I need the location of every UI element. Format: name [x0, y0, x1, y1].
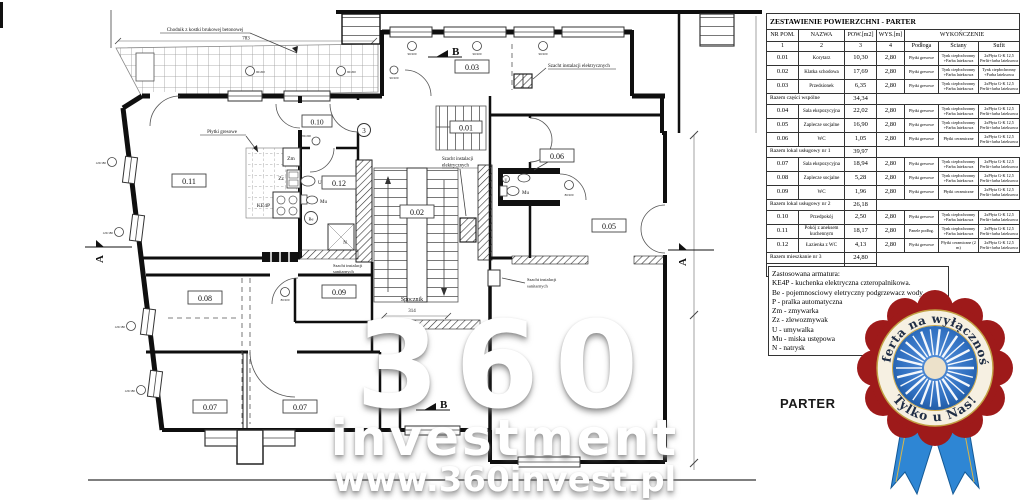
col-num-2: 2 — [799, 42, 845, 52]
table-cell: Płytki gresowe — [905, 239, 939, 253]
table-cell: Tynk ciepłochronny +Farba lateksowa — [939, 105, 979, 119]
table-cell: Przedsionek — [799, 80, 845, 94]
window-tag: 120/180 — [96, 161, 107, 165]
table-cell: 2xPłyta G-K 12,5 Perlit+farba lateksowa — [979, 239, 1020, 253]
table-title: ZESTAWIENIE POWIERZCHNI - PARTER — [767, 14, 1020, 30]
table-cell: Klatka schodowa — [799, 66, 845, 80]
table-cell: 2,80 — [877, 52, 905, 66]
table-cell: 0.12 — [767, 239, 799, 253]
room-label-0-12: 0.12 — [332, 179, 346, 188]
table-title-row: ZESTAWIENIE POWIERZCHNI - PARTER — [767, 14, 1020, 30]
table-cell: Płytki gresowe — [905, 211, 939, 225]
door-tag: 80/200 — [302, 134, 311, 138]
legend-line: Zastosowana armatura: — [772, 269, 948, 278]
shaft-label: Szacht instalacji — [527, 277, 557, 282]
sidewalk-dim: 783 — [242, 37, 250, 42]
table-cell: 0.04 — [767, 105, 799, 119]
shaft-label: Szacht instalacji — [333, 263, 363, 268]
table-cell: 2,50 — [845, 211, 877, 225]
table-cell: Przedpokój — [799, 211, 845, 225]
windows-south — [205, 426, 580, 467]
table-cell: 2,80 — [877, 225, 905, 239]
table-cell — [877, 253, 1020, 264]
window-tag: 120/180 — [125, 389, 136, 393]
table-cell: Sala ekspozycyjna — [799, 105, 845, 119]
table-cell: 2,80 — [877, 66, 905, 80]
fixture-label-zz: Zz — [278, 176, 284, 182]
table-row: 0.09WC1,962,80Płytki gresowePłytki ceram… — [767, 186, 1020, 200]
floor-finish-label: Płytki gresowe — [207, 130, 238, 135]
window-tag: 90/200 — [408, 52, 417, 56]
table-cell: 0.09 — [767, 186, 799, 200]
table-cell: 2xPłyta G-K 12,5 Perlit+farba lateksowa — [979, 158, 1020, 172]
table-cell: Płytki gresowe — [905, 105, 939, 119]
table-cell: 0.10 — [767, 211, 799, 225]
table-cell: Sala ekspozycyjna — [799, 158, 845, 172]
table-cell: 18,94 — [845, 158, 877, 172]
screenshot-stage: Chodnik z kostki brukowej betonowej 783 — [0, 0, 1024, 500]
table-cell: Tynk ciepłochronny +Farba lateksowa — [939, 211, 979, 225]
table-cell: Płytki gresowe — [905, 186, 939, 200]
fixture-label-mu: Mu — [320, 200, 327, 205]
table-cell: 4,13 — [845, 239, 877, 253]
table-header-row: NR POM. NAZWA POW.[m2] WYS.[m] WYKOŃCZEN… — [767, 30, 1020, 42]
table-cell: 2xPłyta G-K 12,5 Perlit+farba lateksowa — [979, 225, 1020, 239]
area-table: ZESTAWIENIE POWIERZCHNI - PARTER NR POM.… — [766, 13, 1020, 277]
spocznik-dim: 314 — [408, 309, 416, 314]
table-cell: Płytki gresowe — [905, 172, 939, 186]
table-cell: 2,80 — [877, 105, 905, 119]
fixture-label-u: U — [318, 181, 322, 186]
table-cell: WC — [799, 186, 845, 200]
table-cell: 2xPłyta G-K 12,5 Perlit+farba lateksowa — [979, 172, 1020, 186]
table-cell: 22,02 — [845, 105, 877, 119]
table-cell: 0.05 — [767, 119, 799, 133]
room-label-0-01: 0.01 — [459, 124, 473, 133]
door-tag: 90/200 — [390, 76, 399, 80]
room-label-0-07a: 0.07 — [203, 403, 217, 412]
room-label-0-11: 0.11 — [182, 177, 196, 186]
table-cell: 24,80 — [845, 253, 877, 264]
shaft-label: Szacht instalacji elektrycznych — [548, 64, 610, 69]
col-header-nazwa: NAZWA — [799, 30, 845, 42]
window-tag: 90/200 — [539, 52, 548, 56]
table-cell: Płytki ceramiczne — [939, 186, 979, 200]
col-num-3: 3 — [845, 42, 877, 52]
table-cell: 2,80 — [877, 158, 905, 172]
table-cell: Razem lokal usługowy nr 1 — [767, 147, 845, 158]
table-summary-row: Razem części wspólne34,34 — [767, 94, 1020, 105]
room-label-0-09: 0.09 — [332, 288, 346, 297]
table-cell: Płytki gresowe — [905, 80, 939, 94]
table-summary-row: Razem mieszkanie nr 324,80 — [767, 253, 1020, 264]
table-cell: 18,17 — [845, 225, 877, 239]
table-cell: Płytki gresowe — [905, 66, 939, 80]
table-cell: 2xPłyta G-K 12,5 Perlit+farba lateksowa — [979, 119, 1020, 133]
col-header-wys: WYS.[m] — [877, 30, 905, 42]
table-cell: Tynk ciepłochronny +Farba lateksowa — [939, 66, 979, 80]
window-tag: 120/180 — [115, 325, 126, 329]
badge-rosette: Oferta na wyłączność Tylko u Nas! — [853, 286, 1013, 446]
table-cell: Razem mieszkanie nr 3 — [767, 253, 845, 264]
table-cell: Tynk ciepłochronny +Farba lateksowa — [939, 158, 979, 172]
table-cell: 34,34 — [845, 94, 877, 105]
table-cell: Razem części wspólne — [767, 94, 845, 105]
door-tag: 80/200 — [565, 193, 574, 197]
table-cell: Tynk ciepłochronny +Farba lateksowa — [979, 66, 1020, 80]
table-cell: 39,97 — [845, 147, 877, 158]
table-cell: Płytki gresowe — [905, 158, 939, 172]
table-cell: 2xPłyta G-K 12,5 Perlit+farba lateksowa — [979, 105, 1020, 119]
col-header-nr: NR POM. — [767, 30, 799, 42]
table-cell: 1,96 — [845, 186, 877, 200]
col-num-4: 4 — [877, 42, 905, 52]
room-label-0-02: 0.02 — [410, 208, 424, 217]
fixture-label-ke4p: KE4P — [257, 203, 270, 209]
table-cell: 2xPłyta G-K 12,5 Perlit+farba lateksowa — [979, 133, 1020, 147]
table-cell: 17,69 — [845, 66, 877, 80]
table-row: 0.03Przedsionek6,352,80Płytki gresoweTyn… — [767, 80, 1020, 94]
table-cell: 16,90 — [845, 119, 877, 133]
table-cell: Tynk ciepłochronny +Farba lateksowa — [939, 52, 979, 66]
table-cell: 2,80 — [877, 211, 905, 225]
table-row: 0.04Sala ekspozycyjna22,022,80Płytki gre… — [767, 105, 1020, 119]
table-cell: Płytki gresowe — [905, 133, 939, 147]
table-cell: 2,80 — [877, 133, 905, 147]
fixture-label-zm: Zm — [287, 156, 295, 162]
table-cell: Płytki ceramiczne — [939, 133, 979, 147]
table-cell: Pokój z aneksem kuchennym — [799, 225, 845, 239]
staircase — [374, 106, 486, 302]
table-cell: Panele podłog. — [905, 225, 939, 239]
table-cell: Tynk ciepłochronny +Farba lateksowa — [939, 80, 979, 94]
col-header-pow: POW.[m2] — [845, 30, 877, 42]
shaft-label: Szacht instalacji — [442, 157, 474, 162]
shaft-label: sanitarnych — [527, 284, 548, 289]
table-cell: Zaplecze socjalne — [799, 119, 845, 133]
shaft-label: elektrycznych — [442, 164, 470, 169]
table-cell: Zaplecze socjalne — [799, 172, 845, 186]
fixture-label-be: Be — [309, 217, 314, 222]
section-label-b: B — [452, 46, 460, 58]
table-cell: Razem lokal usługowy nr 2 — [767, 200, 845, 211]
table-cell: Płytki gresowe — [905, 52, 939, 66]
axis-marker-3: 3 — [362, 127, 366, 135]
table-row: 0.11Pokój z aneksem kuchennym18,172,80Pa… — [767, 225, 1020, 239]
window-tag: 90/200 — [256, 70, 265, 74]
table-cell — [877, 147, 1020, 158]
table-cell: Płytki gresowe — [905, 119, 939, 133]
fixture-label-mu: Mu — [522, 191, 529, 196]
table-cell: 0.07 — [767, 158, 799, 172]
kitchen-annex: Płytki gresowe Zm Zz KE4P — [200, 130, 300, 218]
table-cell: 6,35 — [845, 80, 877, 94]
room-label-0-03: 0.03 — [465, 63, 479, 72]
window-tag: 90/200 — [473, 52, 482, 56]
table-row: 0.06WC1,052,80Płytki gresowePłytki ceram… — [767, 133, 1020, 147]
table-cell: 2,80 — [877, 172, 905, 186]
sidewalk-label: Chodnik z kostki brukowej betonowej — [167, 28, 243, 33]
table-cell: Korytarz — [799, 52, 845, 66]
exclusive-offer-badge: Oferta na wyłączność Tylko u Nas! — [853, 286, 1018, 500]
table-cell: 0.08 — [767, 172, 799, 186]
room-label-0-10: 0.10 — [310, 118, 323, 127]
table-cell: 10,30 — [845, 52, 877, 66]
table-summary-row: Razem lokal usługowy nr 139,97 — [767, 147, 1020, 158]
fixture-label-n: N — [343, 241, 347, 246]
table-cell: Tynk ciepłochronny +Farba lateksowa — [939, 119, 979, 133]
table-cell: 2,80 — [877, 80, 905, 94]
table-cell: 5,28 — [845, 172, 877, 186]
table-cell: Tynk ciepłochronny +Farba lateksowa — [939, 225, 979, 239]
col-header-podloga: Podłoga — [905, 42, 939, 52]
table-row: 0.05Zaplecze socjalne16,902,80Płytki gre… — [767, 119, 1020, 133]
shaft-label: sanitarnych — [333, 269, 354, 274]
table-cell: 2xPłyta G-K 12,5 Perlit+farba lateksowa — [979, 52, 1020, 66]
room-label-0-07b: 0.07 — [293, 403, 307, 412]
table-row: 0.02Klatka schodowa17,692,80Płytki greso… — [767, 66, 1020, 80]
floor-plan: Chodnik z kostki brukowej betonowej 783 — [0, 0, 765, 500]
table-row: 0.08Zaplecze socjalne5,282,80Płytki gres… — [767, 172, 1020, 186]
table-row: 0.07Sala ekspozycyjna18,942,80Płytki gre… — [767, 158, 1020, 172]
table-cell: 0.11 — [767, 225, 799, 239]
col-header-sciany: Ściany — [939, 42, 979, 52]
table-cell: 2xPłyta G-K 12,5 Perlit+farba lateksowa — [979, 211, 1020, 225]
door-tag: 80/200 — [281, 298, 290, 302]
spocznik-label: Spocznik — [401, 297, 423, 303]
window-tag: 120/180 — [103, 231, 114, 235]
table-cell: 26,18 — [845, 200, 877, 211]
table-cell: Łazienka z WC — [799, 239, 845, 253]
table-cell: 0.06 — [767, 133, 799, 147]
window-tag: 90/200 — [347, 70, 356, 74]
section-label-a: A — [94, 255, 106, 263]
table-cell: 1,05 — [845, 133, 877, 147]
wc-006: U Mu 80/200 — [498, 168, 586, 206]
table-cell: 2,80 — [877, 239, 905, 253]
table-cell — [877, 200, 1020, 211]
table-cell: Płytki ceramiczne (2 m) — [939, 239, 979, 253]
table-cell: Tynk ciepłochronny +Farba lateksowa — [939, 172, 979, 186]
table-cell: 2,80 — [877, 119, 905, 133]
table-cell: 2xPłyta G-K 12,5 Perlit+farba lateksowa — [979, 80, 1020, 94]
room-label-0-06: 0.06 — [550, 152, 564, 161]
room-label-0-08: 0.08 — [198, 294, 212, 303]
col-num-1: 1 — [767, 42, 799, 52]
table-cell: 2,80 — [877, 186, 905, 200]
table-row: 0.12Łazienka z WC4,132,80Płytki gresoweP… — [767, 239, 1020, 253]
table-row: 0.10Przedpokój2,502,80Płytki gresoweTynk… — [767, 211, 1020, 225]
section-label-a: A — [677, 258, 689, 266]
table-number-row: 1 2 3 4 Podłoga Ściany Sufit — [767, 42, 1020, 52]
fixture-label-u: U — [505, 178, 508, 183]
col-header-sufit: Sufit — [979, 42, 1020, 52]
table-cell: WC — [799, 133, 845, 147]
table-cell — [877, 94, 1020, 105]
section-label-b: B — [440, 399, 448, 411]
table-summary-row: Razem lokal usługowy nr 226,18 — [767, 200, 1020, 211]
table-row: 0.01Korytarz10,302,80Płytki gresoweTynk … — [767, 52, 1020, 66]
table-cell: 0.03 — [767, 80, 799, 94]
table-cell: 0.02 — [767, 66, 799, 80]
sidewalk: Chodnik z kostki brukowej betonowej 783 — [115, 28, 378, 97]
table-cell: 2xPłyta G-K 12,5 Perlit+farba lateksowa — [979, 186, 1020, 200]
room-label-0-05: 0.05 — [602, 222, 616, 231]
table-cell: 0.01 — [767, 52, 799, 66]
col-header-wykonczenie: WYKOŃCZENIE — [905, 30, 1020, 42]
